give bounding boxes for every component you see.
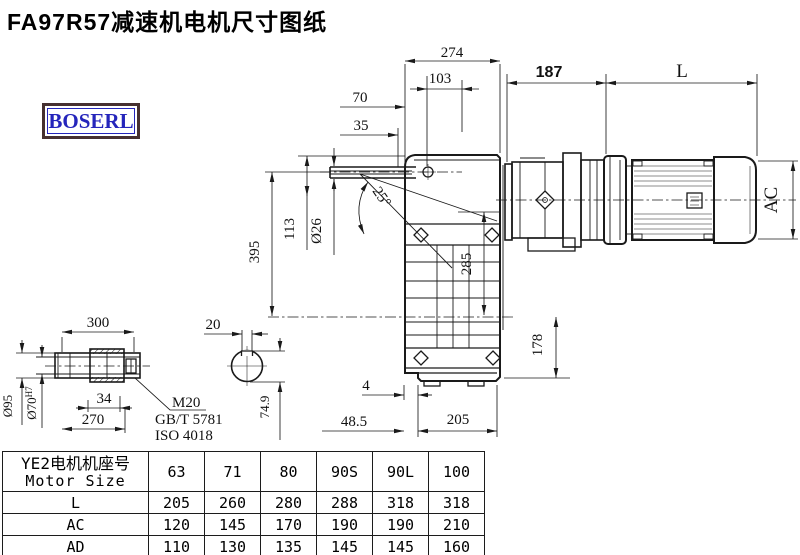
bolt-spec-iso: ISO 4018: [155, 428, 213, 444]
hollow-shaft-detail: 300 34 270 Ø95 Ø70H7 M20 GB/T 5: [0, 315, 223, 444]
col-63: 63: [149, 452, 205, 492]
dim-35: 35: [354, 118, 369, 134]
motor-size-table: YE2电机机座号 Motor Size 63 71 80 90S 90L 100…: [2, 451, 485, 555]
dim-48-5: 48.5: [341, 414, 367, 430]
fa97-front-view: [268, 155, 515, 386]
bolt-spec-m20: M20: [172, 395, 200, 411]
dim-270: 270: [82, 412, 105, 428]
dim-178: 178: [530, 334, 546, 357]
dim-205: 205: [447, 412, 470, 428]
input-shaft: [320, 167, 462, 178]
bolt-spec-gbt: GB/T 5781: [155, 412, 223, 428]
table-row-AD: AD 110 130 135 145 145 160: [3, 536, 485, 555]
dim-AC: AC: [761, 187, 782, 213]
col-90l: 90L: [373, 452, 429, 492]
table-row-L: L 205 260 280 288 318 318: [3, 492, 485, 514]
dim-113: 113: [282, 218, 298, 240]
col-71: 71: [205, 452, 261, 492]
row-label-AD: AD: [3, 536, 149, 555]
col-80: 80: [261, 452, 317, 492]
dim-diameter-70H7: Ø70H7: [24, 386, 39, 420]
dim-diameter-26: Ø26: [309, 218, 325, 244]
row-label-L: L: [3, 492, 149, 514]
terminal-box: [687, 193, 702, 208]
bottom-dimensions: 4 48.5 205: [322, 378, 497, 437]
left-dimensions: 395 113 Ø26 25°: [247, 148, 405, 316]
table-header-motor-size: YE2电机机座号 Motor Size: [3, 452, 149, 492]
dim-angle-25: 25°: [369, 184, 394, 210]
dim-74-9: 74.9: [257, 396, 272, 419]
dimension-drawing-page: FA97R57减速机电机尺寸图纸 BOSERL: [0, 0, 800, 555]
col-90s: 90S: [317, 452, 373, 492]
dim-103: 103: [429, 71, 452, 87]
dim-395: 395: [247, 241, 263, 264]
right-dimensions: 285 178 AC: [458, 161, 798, 378]
dim-4: 4: [362, 378, 370, 394]
technical-drawing: 274 103 70 35 187 L 395 113 Ø26: [0, 0, 800, 450]
table-row-AC: AC 120 145 170 190 190 210: [3, 514, 485, 536]
table-header-row: YE2电机机座号 Motor Size 63 71 80 90S 90L 100: [3, 452, 485, 492]
dim-L: L: [676, 61, 688, 82]
dim-300: 300: [87, 315, 110, 331]
dim-70: 70: [353, 90, 368, 106]
dim-285: 285: [459, 253, 475, 276]
r57-gearbox: [505, 153, 604, 251]
motor: [496, 156, 796, 244]
row-label-AC: AC: [3, 514, 149, 536]
dim-187: 187: [536, 64, 563, 81]
col-100: 100: [429, 452, 485, 492]
dim-diameter-95: Ø95: [0, 395, 15, 417]
dim-274: 274: [441, 45, 464, 61]
dim-34: 34: [97, 391, 113, 407]
dim-20: 20: [206, 317, 221, 333]
